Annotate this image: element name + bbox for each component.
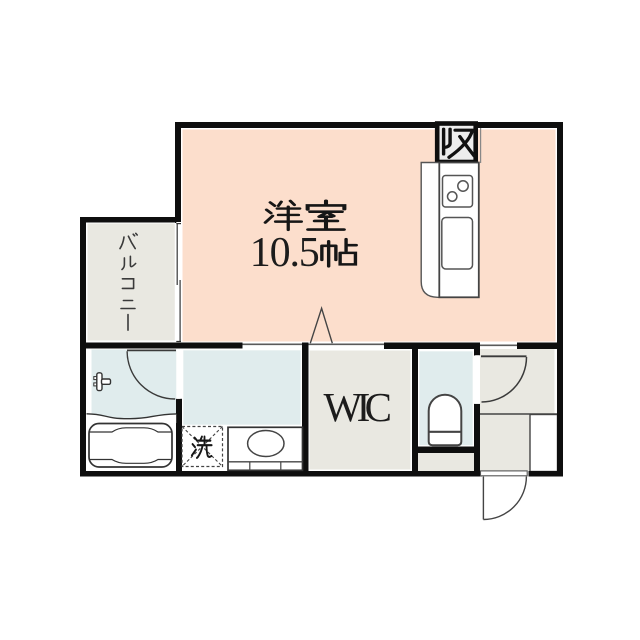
svg-text:WIC: WIC [324,384,393,430]
svg-text:10.5: 10.5 [250,230,320,276]
